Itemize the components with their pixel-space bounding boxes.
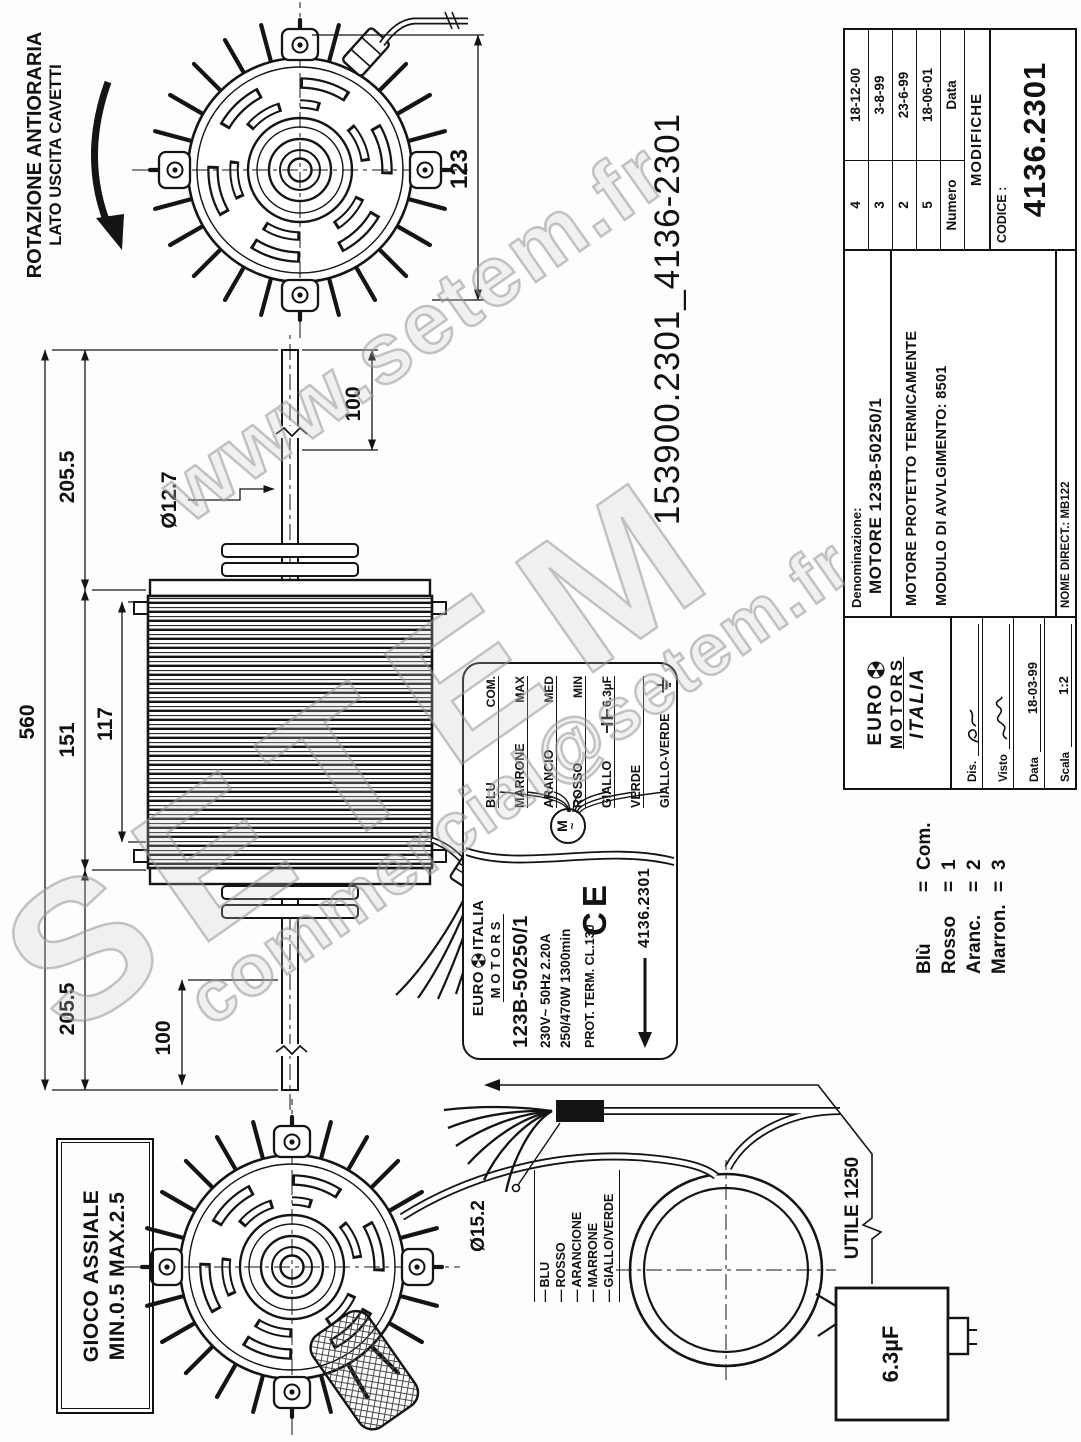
cable-wire-label: BLU xyxy=(537,1170,553,1302)
description-line1: MOTORE PROTETTO TERMICAMENTE xyxy=(904,259,920,606)
visto-signature xyxy=(995,695,1013,741)
dim-overall-length: 560 xyxy=(16,692,40,752)
legend-equals: = xyxy=(962,870,987,892)
axial-play-line2: MIN.0.5 MAX.2.5 xyxy=(105,1192,131,1361)
legend-name: Rosso xyxy=(937,892,962,974)
legend-equals: = xyxy=(987,870,1012,892)
ce-mark: CE xyxy=(576,880,614,936)
revision-header-row: Numero Data xyxy=(941,30,965,249)
description-line2: MODULO DI AVVLGIMENTO: 8501 xyxy=(934,259,950,606)
denomination-value: MOTORE 123B-50250/1 xyxy=(866,259,886,594)
rotation-note: ROTAZIONE ANTIORARIA LATO USCITA CAVETTI xyxy=(24,18,66,292)
legend-name: Aranc. xyxy=(962,892,987,974)
cable-wire-label: GIALLO/VERDE xyxy=(601,1170,617,1302)
field-dis: Dis. xyxy=(952,618,983,788)
wiring-row: ARANCIO MED xyxy=(528,676,557,808)
wiring-row: GIALLO-VERDE xyxy=(644,676,672,808)
wiring-row: VERDE xyxy=(615,676,644,808)
legend-equals: = xyxy=(937,870,962,892)
ground-icon xyxy=(657,676,672,694)
nameplate-spec-half: EURO ITALIA MOTORS 123B-50250/1 230V~ 50… xyxy=(464,858,676,1058)
motor-nameplate: EURO ITALIA MOTORS 123B-50250/1 230V~ 50… xyxy=(462,662,678,1060)
nameplate-model: 123B-50250/1 xyxy=(510,858,533,1048)
motor-symbol: M ~ xyxy=(550,808,586,844)
logo-italia: ITALIA xyxy=(908,667,928,739)
fan-logo-icon xyxy=(867,661,885,679)
cable-wire-labels: BLU ROSSO ARANCIONE MARRONE GIALLO/VERDE xyxy=(534,1170,620,1302)
codice-cell: CODICE : 4136.2301 xyxy=(991,30,1075,249)
legend-name: Blù xyxy=(912,892,937,974)
legend-value: 1 xyxy=(937,808,962,870)
logo-euro: EURO xyxy=(866,683,886,746)
field-data: Data 18-03-99 xyxy=(1014,618,1045,788)
codice-label: CODICE : xyxy=(995,187,1009,243)
cable-wire-label: ROSSO xyxy=(553,1170,569,1302)
brand-motors: MOTORS xyxy=(488,914,504,1003)
rotation-note-line1: ROTAZIONE ANTIORARIA xyxy=(24,18,47,292)
revision-row: 2 23-6-99 xyxy=(893,30,917,249)
legend-equals: = xyxy=(912,870,937,892)
brand-italia: ITALIA xyxy=(470,900,487,950)
wiring-row: ROSSO MIN xyxy=(557,676,586,808)
legend-row: Blù = Com. xyxy=(912,808,937,974)
legend-row: Aranc. = 2 xyxy=(962,808,987,974)
revision-row: 5 18-06-01 xyxy=(917,30,941,249)
codice-value: 4136.2301 xyxy=(1017,30,1053,249)
nameplate-power: 250/470W 1300min xyxy=(558,858,573,1048)
cable-wire-label: MARRONE xyxy=(585,1170,601,1302)
capacitor-value-label: 6.3µF xyxy=(878,1288,904,1420)
cable-wire-label: ARANCIONE xyxy=(569,1170,585,1302)
denomination-label: Denominazione: xyxy=(849,259,864,608)
modifiche-label: MODIFICHE xyxy=(965,30,991,249)
title-block-logo-column: EURO MOTORS ITALIA Dis. xyxy=(845,616,1075,788)
drawing-canvas: ROTAZIONE ANTIORARIA LATO USCITA CAVETTI… xyxy=(0,0,1081,1442)
revision-row: 4 18-12-00 xyxy=(845,30,869,249)
capacitor-icon xyxy=(600,709,614,733)
wiring-row: GIALLO 6.3µF xyxy=(586,676,615,808)
field-scala: Scala 1:2 xyxy=(1045,618,1075,788)
field-visto: Visto xyxy=(983,618,1014,788)
fan-front-view-bottom xyxy=(124,1099,460,1436)
dim-shaft-end-b: 100 xyxy=(152,1008,176,1068)
axial-play-line1: GIOCO ASSIALE xyxy=(79,1190,105,1363)
revision-row: 3 3-8-99 xyxy=(869,30,893,249)
cable-usable-length: UTILE 1250 xyxy=(842,1136,864,1280)
axial-play-box: GIOCO ASSIALE MIN.0.5 MAX.2.5 xyxy=(56,1138,154,1414)
capacitor-value: 6.3µF xyxy=(600,676,614,707)
drawing-ref: 153900.2301_4136-2301 xyxy=(648,84,688,554)
rotation-arrow xyxy=(94,82,124,250)
title-block-revisions: 4 18-12-00 3 3-8-99 2 23-6-99 5 18-06-01… xyxy=(845,30,1075,251)
nameplate-voltage: 230V~ 50Hz 2.20A xyxy=(538,858,553,1048)
wiring-row: BLU COM. xyxy=(470,676,499,808)
drawing-page: ROTAZIONE ANTIORARIA LATO USCITA CAVETTI… xyxy=(0,0,1081,1442)
fan-logo-icon xyxy=(471,953,486,968)
brand-euro: EURO xyxy=(470,971,487,1016)
rotation-note-line2: LATO USCITA CAVETTI xyxy=(47,18,66,292)
legend-value: 2 xyxy=(962,808,987,870)
wiring-row: MARRONE MAX xyxy=(499,676,528,808)
logo-motors: MOTORS xyxy=(888,657,906,749)
dim-fan-depth: 123 xyxy=(446,134,474,204)
wire-legend: Blù = Com. Rosso = 1 Aranc. = 2 Marron. … xyxy=(912,808,1012,974)
dim-shaft-diameter: Ø12.7 xyxy=(158,454,182,546)
nameplate-code: 4136.2301 xyxy=(636,868,654,948)
nameplate-brand: EURO ITALIA MOTORS xyxy=(470,868,505,1048)
dim-cable-diameter: Ø15.2 xyxy=(468,1186,490,1266)
dim-body-length: 151 xyxy=(56,710,80,770)
code-arrow-icon xyxy=(638,956,652,1048)
legend-value: Com. xyxy=(912,808,937,870)
dim-fin-pack: 117 xyxy=(94,694,118,754)
fan-front-view-top xyxy=(132,2,484,338)
title-block-denomination: Denominazione: MOTORE 123B-50250/1 MOTOR… xyxy=(845,251,1075,616)
nameplate-code-row: 4136.2301 xyxy=(636,868,654,1048)
dim-shaft-side-a: 205.5 xyxy=(56,442,80,512)
legend-name: Marron. xyxy=(987,892,1012,974)
nameplate-wiring: BLU COM. MARRONE MAX ARANCIO MED ROSSO M… xyxy=(470,676,672,808)
legend-row: Rosso = 1 xyxy=(937,808,962,974)
dis-signature xyxy=(964,706,982,746)
dim-shaft-side-b: 205.5 xyxy=(56,974,80,1044)
company-logo: EURO MOTORS ITALIA xyxy=(845,618,952,788)
title-block: EURO MOTORS ITALIA Dis. xyxy=(843,28,1077,790)
nome-direct: NOME DIRECT.: MB122 xyxy=(1055,251,1075,616)
legend-value: 3 xyxy=(987,808,1012,870)
legend-row: Marron. = 3 xyxy=(987,808,1012,974)
dim-shaft-end-a: 100 xyxy=(342,374,366,434)
